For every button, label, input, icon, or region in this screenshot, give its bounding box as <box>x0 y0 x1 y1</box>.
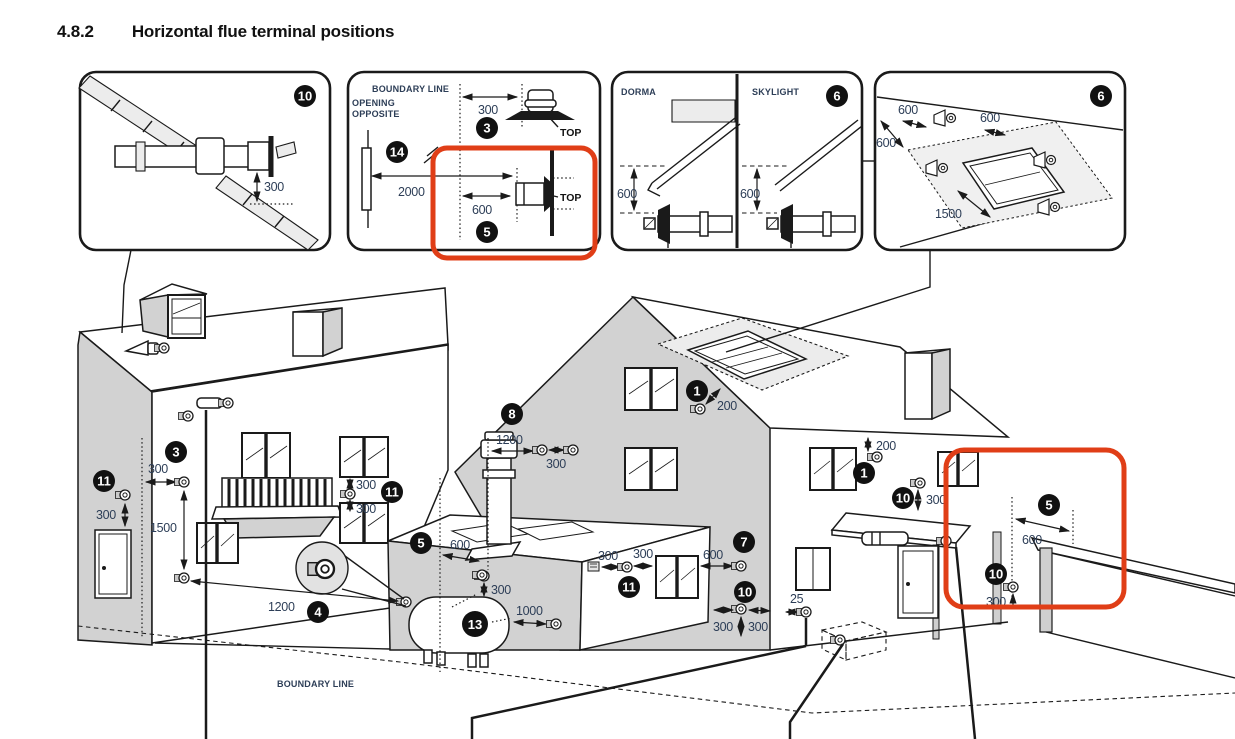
svg-text:600: 600 <box>876 136 896 150</box>
svg-text:200: 200 <box>717 399 737 413</box>
svg-text:2000: 2000 <box>398 185 425 199</box>
svg-text:600: 600 <box>472 203 492 217</box>
flue-terminal-icon <box>175 477 190 487</box>
dorma-label: DORMA <box>621 87 656 97</box>
badge-11: 11 <box>93 470 115 492</box>
opening-opposite-label: OPENING <box>352 98 395 108</box>
badge-5: 5 <box>1038 494 1060 516</box>
svg-text:1: 1 <box>860 466 867 481</box>
badge-13: 13 <box>462 611 488 637</box>
svg-text:OPPOSITE: OPPOSITE <box>352 109 400 119</box>
flue-terminal-icon <box>533 445 548 455</box>
flue-terminal-icon <box>732 604 747 614</box>
page-title: 4.8.2 Horizontal flue terminal positions <box>57 22 394 42</box>
svg-text:1200: 1200 <box>268 600 295 614</box>
svg-text:300: 300 <box>478 103 498 117</box>
svg-text:25: 25 <box>790 592 804 606</box>
boundary-line-label: BOUNDARY LINE <box>372 84 449 94</box>
svg-text:300: 300 <box>748 620 768 634</box>
svg-text:11: 11 <box>622 580 636 595</box>
svg-text:5: 5 <box>483 225 490 240</box>
badge-6: 6 <box>1090 85 1112 107</box>
flue-terminal-icon <box>831 635 846 645</box>
section-number: 4.8.2 <box>57 22 94 42</box>
flue-terminal-icon <box>732 561 747 571</box>
svg-text:600: 600 <box>703 548 723 562</box>
badge-5: 5 <box>476 221 498 243</box>
badge-5: 5 <box>410 532 432 554</box>
flue-terminal-icon <box>868 452 883 462</box>
leader-line <box>790 644 843 739</box>
svg-text:10: 10 <box>896 491 910 506</box>
svg-text:3: 3 <box>172 445 179 460</box>
leader-line <box>472 646 806 739</box>
flue-terminal-icon <box>219 398 234 408</box>
svg-text:13: 13 <box>468 617 482 632</box>
window <box>810 448 856 490</box>
badge-10: 10 <box>985 563 1007 585</box>
svg-text:10: 10 <box>989 567 1003 582</box>
svg-text:600: 600 <box>898 103 918 117</box>
svg-text:5: 5 <box>1045 498 1052 513</box>
top-label: TOP <box>560 127 581 139</box>
window <box>625 448 677 490</box>
badge-4: 4 <box>307 601 329 623</box>
oil-tank <box>409 597 509 667</box>
svg-text:300: 300 <box>356 478 376 492</box>
flue-terminal-icon <box>179 411 194 421</box>
svg-text:8: 8 <box>508 407 515 422</box>
window <box>340 437 388 477</box>
flue-terminal-icon <box>911 478 926 488</box>
flue-terminal-icon <box>473 570 488 580</box>
svg-text:600: 600 <box>1022 533 1042 547</box>
flue-through-roof <box>115 136 296 177</box>
svg-text:6: 6 <box>1097 89 1104 104</box>
flue-terminal-icon <box>341 489 356 499</box>
svg-text:300: 300 <box>546 457 566 471</box>
flue-terminal-icon <box>547 619 562 629</box>
badge-14: 14 <box>386 141 408 163</box>
badge-10: 10 <box>734 581 756 603</box>
badge-3: 3 <box>165 441 187 463</box>
top-label: TOP <box>560 192 581 204</box>
window <box>656 556 698 598</box>
flue-terminal-icon <box>308 560 334 578</box>
svg-text:1500: 1500 <box>935 207 962 221</box>
svg-text:3: 3 <box>483 121 490 136</box>
svg-text:1: 1 <box>693 384 700 399</box>
svg-text:300: 300 <box>148 462 168 476</box>
svg-text:7: 7 <box>740 535 747 550</box>
section-title: Horizontal flue terminal positions <box>132 22 394 42</box>
svg-text:200: 200 <box>876 439 896 453</box>
manual-page: 4.8.2 Horizontal flue terminal positions <box>0 0 1235 739</box>
flue-terminal-icon <box>564 445 579 455</box>
svg-text:5: 5 <box>417 536 424 551</box>
detail-box-dorma-skylight: DORMA SKYLIGHT 6 600 <box>612 72 875 250</box>
air-vent <box>588 562 599 571</box>
badge-1: 1 <box>853 462 875 484</box>
main-house <box>455 297 1235 739</box>
svg-text:600: 600 <box>450 538 470 552</box>
flue-positions-diagram: BOUNDARY LINE 300 11 300 1500 3 <box>0 0 1235 739</box>
front-door <box>898 546 938 618</box>
svg-text:1500: 1500 <box>150 521 177 535</box>
svg-text:300: 300 <box>926 493 946 507</box>
callout-connector <box>122 250 131 333</box>
flue-terminal-icon <box>175 573 190 583</box>
window <box>625 368 677 410</box>
svg-text:600: 600 <box>740 187 760 201</box>
flue-terminal-icon <box>116 490 131 500</box>
window <box>197 523 238 563</box>
flue-terminal-icon <box>618 562 633 572</box>
badge-1: 1 <box>686 380 708 402</box>
svg-text:14: 14 <box>390 145 405 160</box>
svg-text:4: 4 <box>314 605 322 620</box>
svg-text:300: 300 <box>96 508 116 522</box>
badge-7: 7 <box>733 531 755 553</box>
svg-text:300: 300 <box>356 502 376 516</box>
svg-text:10: 10 <box>298 89 312 104</box>
detail-box-boundary: BOUNDARY LINE 300 TOP 3 OPENING OPPOSITE… <box>348 72 600 250</box>
skylight-label: SKYLIGHT <box>752 87 799 97</box>
svg-text:6: 6 <box>833 89 840 104</box>
annotation-front-eaves: 200 1 <box>853 438 896 484</box>
chimney-main-house <box>905 349 950 419</box>
svg-text:11: 11 <box>97 474 111 489</box>
svg-text:300: 300 <box>633 547 653 561</box>
badge-8: 8 <box>501 403 523 425</box>
svg-text:300: 300 <box>598 549 618 563</box>
svg-text:10: 10 <box>738 585 752 600</box>
dormer-window <box>140 284 207 338</box>
badge-6: 6 <box>826 85 848 107</box>
badge-10: 10 <box>294 85 316 107</box>
flue-terminal-icon <box>797 607 812 617</box>
side-door <box>95 530 131 598</box>
flue-terminal-icon <box>691 404 706 414</box>
boundary-line-label: BOUNDARY LINE <box>277 679 354 689</box>
window <box>796 548 830 590</box>
badge-11: 11 <box>381 481 403 503</box>
svg-text:300: 300 <box>264 180 284 194</box>
opening-symbol <box>362 148 371 210</box>
svg-text:600: 600 <box>617 187 637 201</box>
chimney-left-house <box>293 308 342 356</box>
flue-terminal-icon <box>1004 582 1019 592</box>
svg-text:1200: 1200 <box>496 433 523 447</box>
badge-10: 10 <box>892 487 914 509</box>
badge-11: 11 <box>618 576 640 598</box>
svg-text:600: 600 <box>980 111 1000 125</box>
badge-3: 3 <box>476 117 498 139</box>
svg-text:11: 11 <box>385 485 399 500</box>
svg-text:1000: 1000 <box>516 604 543 618</box>
svg-text:300: 300 <box>713 620 733 634</box>
